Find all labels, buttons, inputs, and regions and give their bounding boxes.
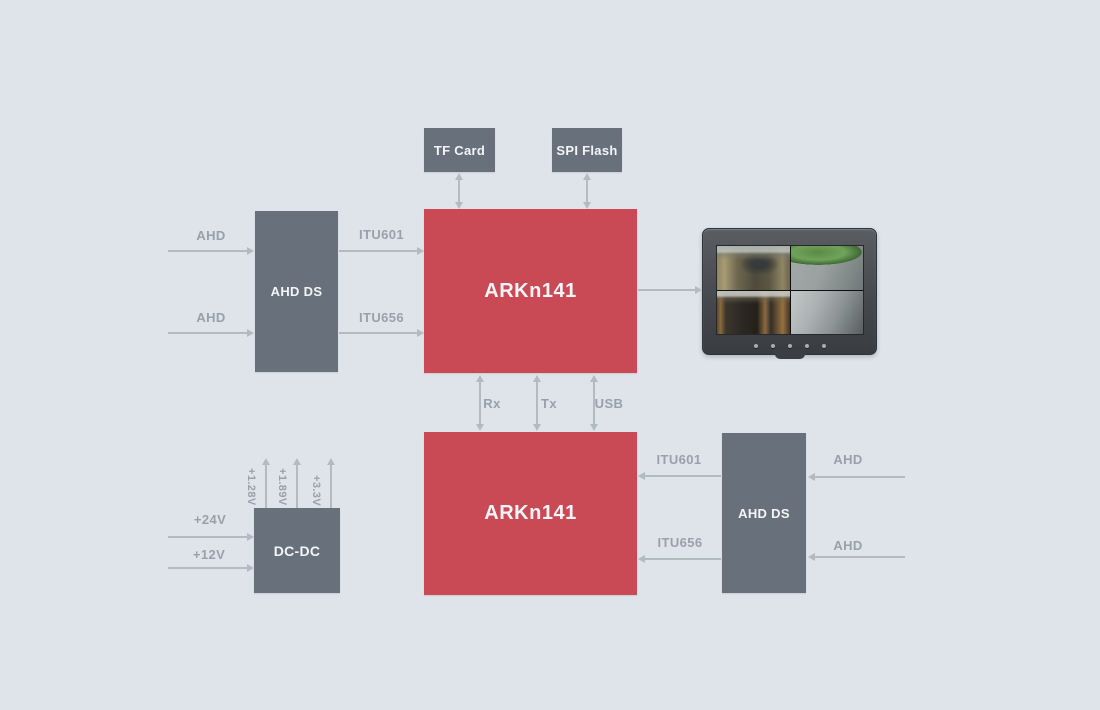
block-diagram-canvas: TF Card SPI Flash AHD DS ARKn141 ARKn141… — [0, 0, 1100, 710]
monitor-stand — [775, 350, 805, 359]
tf-card-block: TF Card — [424, 128, 495, 172]
signal-24v: +24V — [186, 512, 234, 527]
spi-flash-label: SPI Flash — [556, 143, 617, 158]
ahd-ds-right-label: AHD DS — [738, 506, 790, 521]
arrow-ahd-in-bottom — [168, 332, 248, 334]
signal-1v28-rail: +1.28V — [245, 468, 257, 506]
signal-usb: USB — [592, 396, 626, 411]
camera-view-top-right — [791, 246, 864, 290]
arkn141-top-label: ARKn141 — [484, 280, 576, 303]
signal-ahd-right-bottom: AHD — [826, 538, 870, 553]
signal-12v: +12V — [185, 547, 233, 562]
quad-view-monitor — [702, 228, 877, 355]
ahd-ds-left-block: AHD DS — [255, 211, 338, 372]
signal-ahd-left-top: AHD — [189, 228, 233, 243]
signal-tx: Tx — [535, 396, 563, 411]
arrow-24v-in — [168, 536, 248, 538]
ahd-ds-left-label: AHD DS — [271, 284, 323, 299]
arrow-itu601-right — [644, 475, 721, 477]
arrow-power-rail-3 — [330, 464, 332, 508]
monitor-screen — [716, 245, 864, 335]
monitor-button-icon — [754, 344, 758, 348]
camera-view-top-left — [717, 246, 790, 290]
monitor-button-icon — [805, 344, 809, 348]
signal-itu656-right: ITU656 — [652, 535, 708, 550]
arrow-ahd-in-top — [168, 250, 248, 252]
signal-ahd-right-top: AHD — [826, 452, 870, 467]
arrow-itu656-right — [644, 558, 721, 560]
tf-card-label: TF Card — [434, 143, 485, 158]
monitor-button-icon — [822, 344, 826, 348]
arrow-tf-card-link — [458, 179, 460, 203]
monitor-buttons — [754, 344, 826, 348]
camera-view-bottom-left — [717, 291, 790, 335]
arrow-12v-in — [168, 567, 248, 569]
monitor-button-icon — [788, 344, 792, 348]
signal-ahd-left-bottom: AHD — [189, 310, 233, 325]
dc-dc-block: DC-DC — [254, 508, 340, 593]
arrow-power-rail-2 — [296, 464, 298, 508]
arkn141-top-block: ARKn141 — [424, 209, 637, 373]
dc-dc-label: DC-DC — [274, 543, 321, 559]
signal-rx: Rx — [478, 396, 506, 411]
arrow-ahd-right-bottom — [814, 556, 905, 558]
signal-itu601-left: ITU601 — [354, 227, 409, 242]
camera-view-bottom-right — [791, 291, 864, 335]
ahd-ds-right-block: AHD DS — [722, 433, 806, 593]
spi-flash-block: SPI Flash — [552, 128, 622, 172]
arkn141-bottom-label: ARKn141 — [484, 502, 576, 525]
arkn141-bottom-block: ARKn141 — [424, 432, 637, 595]
arrow-ahd-right-top — [814, 476, 905, 478]
signal-3v3-rail: +3.3V — [310, 475, 322, 506]
arrow-itu601-left — [339, 250, 418, 252]
signal-itu601-right: ITU601 — [651, 452, 707, 467]
arrow-power-rail-1 — [265, 464, 267, 508]
arrow-display-out — [638, 289, 696, 291]
arrow-spi-flash-link — [586, 179, 588, 203]
arrow-itu656-left — [339, 332, 418, 334]
monitor-button-icon — [771, 344, 775, 348]
signal-1v89-rail: +1.89V — [276, 468, 288, 506]
signal-itu656-left: ITU656 — [354, 310, 409, 325]
